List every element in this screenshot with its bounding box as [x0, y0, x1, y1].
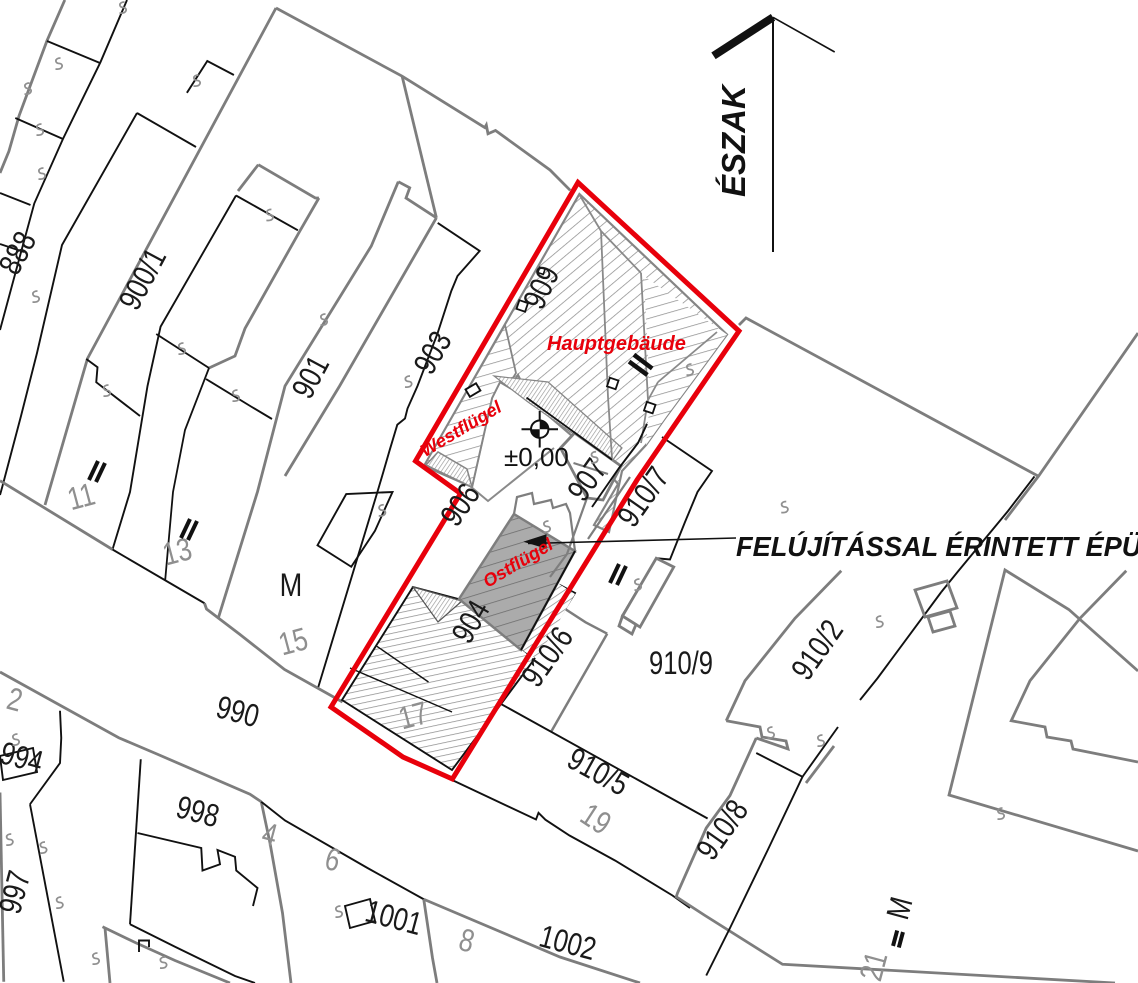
- svg-text:910/9: 910/9: [649, 646, 713, 681]
- svg-text:±0,00: ±0,00: [504, 442, 569, 472]
- svg-text:FELÚJÍTÁSSAL ÉRINTETT ÉPÜLE: FELÚJÍTÁSSAL ÉRINTETT ÉPÜLE: [736, 531, 1138, 562]
- svg-text:ÉSZAK: ÉSZAK: [715, 83, 752, 197]
- svg-text:Hauptgebäude: Hauptgebäude: [547, 333, 686, 355]
- svg-text:M: M: [280, 568, 303, 604]
